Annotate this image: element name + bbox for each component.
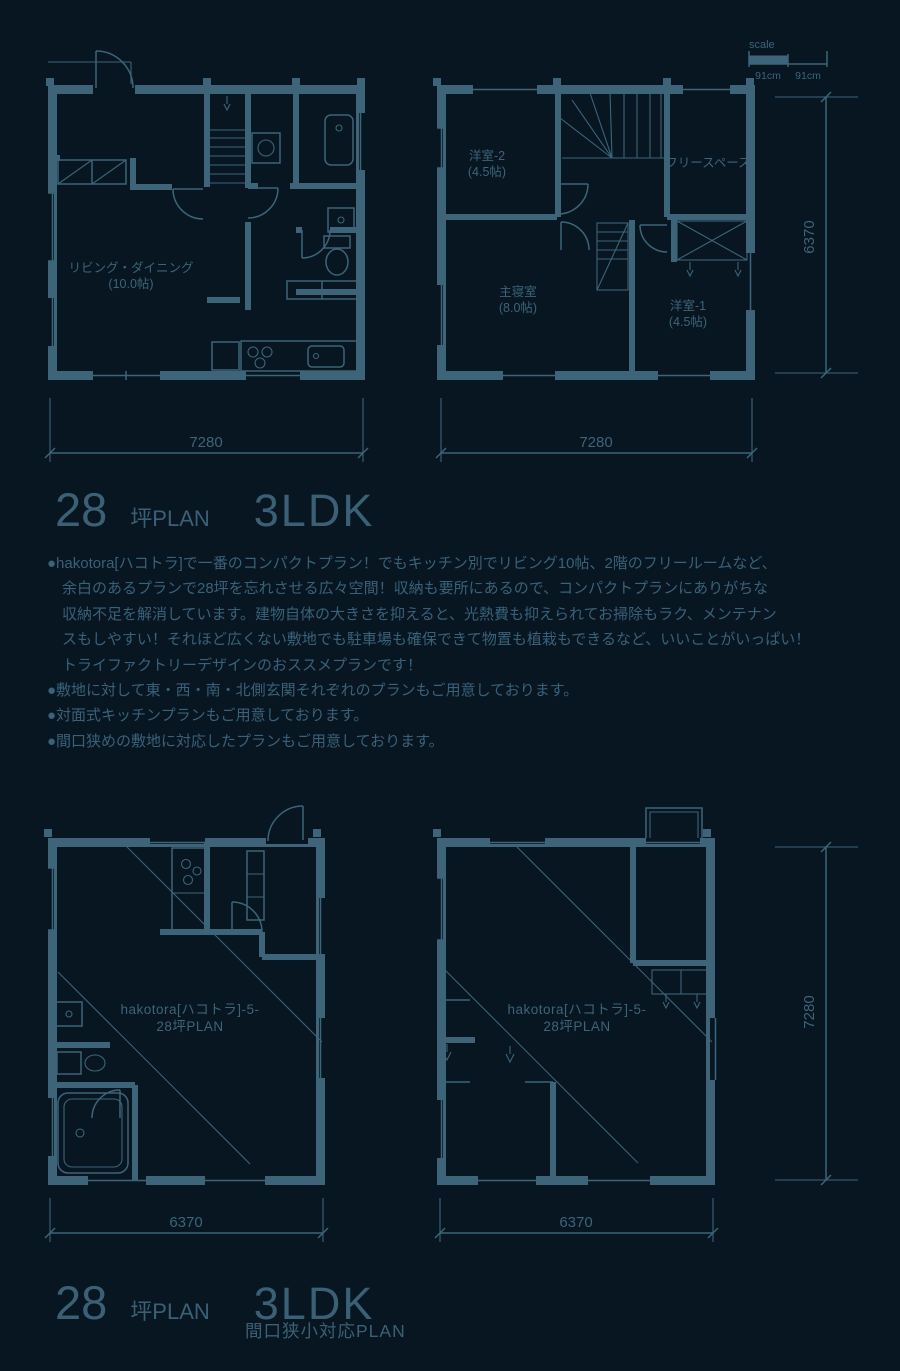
floor-plan-1f-28: リビング・ダイニング (10.0帖) 7280 bbox=[43, 51, 370, 462]
tsubo-number: 28 bbox=[55, 1279, 107, 1326]
layout-type-label: 3LDK bbox=[254, 488, 375, 533]
bedroom2-size: (4.5帖) bbox=[468, 164, 506, 179]
watermark-line1: hakotora[ハコトラ]-5- bbox=[507, 1002, 646, 1017]
dimension-1f-width: 7280 bbox=[45, 398, 368, 462]
narrow-lot-subtitle: 間口狭小対応PLAN bbox=[245, 1318, 406, 1343]
dim-1f-width-value: 7280 bbox=[189, 434, 222, 451]
entrance-door bbox=[48, 51, 133, 88]
dimension-2f-width: 7280 bbox=[436, 398, 757, 462]
description-line: トライファクトリーデザインのおススメプランです！ bbox=[47, 653, 882, 678]
dim-2f-width-value: 7280 bbox=[579, 434, 612, 451]
plan-description: ●hakotora[ハコトラ]で一番のコンパクトプラン！でもキッチン別でリビング… bbox=[47, 551, 882, 754]
plan-heading-top: 28 坪PLAN 3LDK bbox=[55, 486, 374, 533]
plan-watermark-2f: hakotora[ハコトラ]-5- 28坪PLAN bbox=[443, 845, 712, 1163]
tsubo-number: 28 bbox=[55, 486, 107, 533]
scale-label: scale bbox=[749, 39, 775, 51]
closet-narrow-2f bbox=[652, 970, 710, 1008]
watermark-line2: 28坪PLAN bbox=[156, 1019, 223, 1034]
bathtub-narrow bbox=[58, 1093, 128, 1173]
dim-narrow-2f-width-value: 6370 bbox=[559, 1214, 592, 1231]
dimension-narrow-2f-width: 6370 bbox=[435, 1198, 718, 1242]
washing-machine bbox=[252, 133, 280, 163]
dim-narrow-2f-height-value: 7280 bbox=[801, 995, 818, 1028]
master-bedroom-size: (8.0帖) bbox=[499, 300, 537, 315]
dimension-2f-height: 6370 bbox=[775, 92, 858, 378]
free-space-label: フリースペース bbox=[665, 156, 750, 170]
floor-plan-narrow-1f: hakotora[ハコトラ]-5- 28坪PLAN 6370 bbox=[43, 806, 330, 1242]
dimension-narrow-1f-width: 6370 bbox=[45, 1198, 328, 1242]
interior-doors-2f bbox=[558, 184, 667, 252]
toilet-narrow bbox=[57, 1052, 105, 1074]
living-dining-label: リビング・ダイニング bbox=[68, 260, 193, 275]
scale-segment1-label: 91cm bbox=[755, 70, 781, 82]
floor-plan-narrow-2f: hakotora[ハコトラ]-5- 28坪PLAN 6370 7280 bbox=[432, 808, 858, 1242]
master-bedroom-label: 主寝室 bbox=[499, 284, 537, 299]
bathtub bbox=[325, 115, 353, 165]
floor-plan-2f-28: 洋室-2 (4.5帖) フリースペース 主寝室 (8.0帖) 洋室-1 (4.5… bbox=[432, 78, 858, 462]
bedroom1-label: 洋室-1 bbox=[670, 298, 706, 313]
watermark-line2: 28坪PLAN bbox=[543, 1019, 610, 1034]
kitchen-narrow bbox=[172, 848, 264, 930]
description-line: ●hakotora[ハコトラ]で一番のコンパクトプラン！でもキッチン別でリビング… bbox=[47, 551, 882, 576]
scale-indicator: scale 91cm 91cm bbox=[749, 39, 827, 82]
description-line: 余白のあるプランで28坪を忘れさせる広々空間！収納も要所にあるので、コンパクトプ… bbox=[47, 576, 882, 601]
description-line: 収納不足を解消しています。建物自体の大きさを抑えると、光熱費も抑えられてお掃除も… bbox=[47, 602, 882, 627]
staircase-1f bbox=[208, 96, 247, 183]
description-line: スもしやすい！それほど広くない敷地でも駐車場も確保できて物置も植栽もできるなど、… bbox=[47, 627, 882, 652]
shoe-cabinet bbox=[58, 160, 126, 184]
page: scale 91cm 91cm bbox=[0, 0, 900, 1371]
bedroom1-size: (4.5帖) bbox=[669, 314, 707, 329]
watermark-line1: hakotora[ハコトラ]-5- bbox=[120, 1002, 259, 1017]
description-line: ●間口狭めの敷地に対応したプランもご用意しております。 bbox=[47, 729, 882, 754]
interior-walls-1f bbox=[48, 92, 361, 310]
dimension-narrow-2f-height: 7280 bbox=[775, 842, 858, 1185]
interior-doors-1f bbox=[173, 188, 330, 258]
tsubo-unit-label: 坪PLAN bbox=[130, 508, 209, 530]
scale-segment2-label: 91cm bbox=[795, 70, 821, 82]
dim-narrow-1f-width-value: 6370 bbox=[169, 1214, 202, 1231]
window-markers-narrow-2f bbox=[443, 1044, 514, 1062]
bedroom2-label: 洋室-2 bbox=[469, 148, 505, 163]
bath-door-narrow bbox=[92, 1090, 120, 1118]
staircase-2f bbox=[560, 92, 667, 290]
description-line: ●敷地に対して東・西・南・北側玄関それぞれのプランもご用意しております。 bbox=[47, 678, 882, 703]
vanity-narrow bbox=[56, 1002, 82, 1026]
dim-2f-height-value: 6370 bbox=[801, 220, 818, 253]
tsubo-unit-label: 坪PLAN bbox=[130, 1301, 209, 1323]
closet-2f bbox=[677, 221, 747, 276]
description-line: ●対面式キッチンプランもご用意しております。 bbox=[47, 703, 882, 728]
living-dining-size: (10.0帖) bbox=[108, 276, 153, 291]
